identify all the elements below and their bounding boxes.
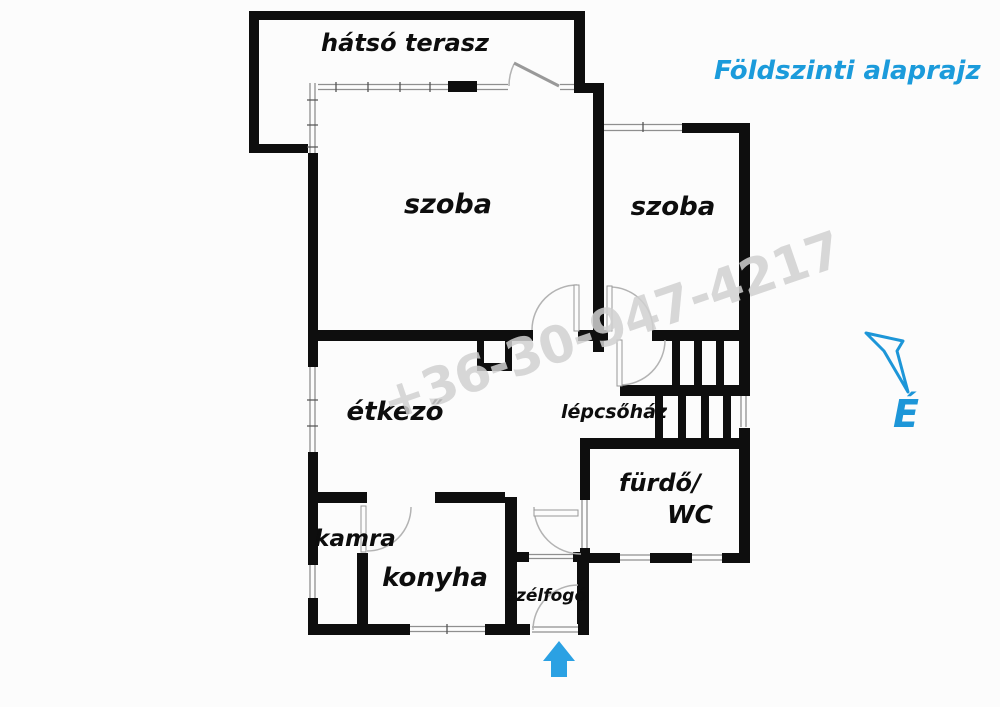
room-label-room1: szoba (404, 191, 492, 218)
pantry-divider-wall (357, 553, 368, 635)
north-arrow-icon (866, 333, 908, 392)
bathroom-label-line2: WC (667, 499, 713, 530)
floorplan-canvas: hátsó terasz szoba szoba étkező lépcsőhá… (0, 0, 1000, 707)
room-label-kitchen: konyha (382, 565, 488, 591)
north-label: É (893, 392, 919, 436)
bath-south-wall-2 (650, 553, 692, 563)
window-pier (448, 81, 477, 92)
south-wall-west (308, 624, 410, 635)
bathroom-door-leaf (534, 510, 578, 516)
west-wall-mid1 (308, 341, 318, 367)
terrace-left-wall (249, 11, 259, 153)
hall-wall-stub-west (517, 552, 529, 562)
south-wall-mid (485, 624, 532, 635)
west-wall-upper (308, 153, 318, 341)
entrance-arrow-icon (543, 641, 575, 677)
room-label-pantry: kamra (314, 528, 396, 551)
room-label-terrace: hátsó terasz (321, 31, 489, 55)
bathroom-label-line1: fürdő/ (619, 468, 713, 499)
terrace-door-arc (509, 64, 514, 86)
kitchen-north-wall (435, 492, 505, 503)
room-label-room2: szoba (631, 194, 716, 220)
kitchen-east-wall (505, 497, 517, 635)
terrace-right-wall (574, 11, 585, 88)
terrace-bottom-wall (249, 144, 308, 153)
terrace-door-leaf (514, 63, 559, 86)
stairs-mid-wall (620, 385, 750, 396)
room-label-stairwell: lépcsőház (561, 403, 667, 422)
pantry-north-wall (312, 492, 367, 503)
room-label-vestibule: szélfogó (506, 588, 586, 605)
terrace-top-wall (249, 11, 585, 20)
bath-south-wall-3 (722, 553, 750, 563)
bath-west-wall-upper (580, 438, 590, 500)
plan-title: Földszinti alaprajz (714, 56, 981, 86)
room-label-bathroom: fürdő/ WC (619, 468, 713, 530)
